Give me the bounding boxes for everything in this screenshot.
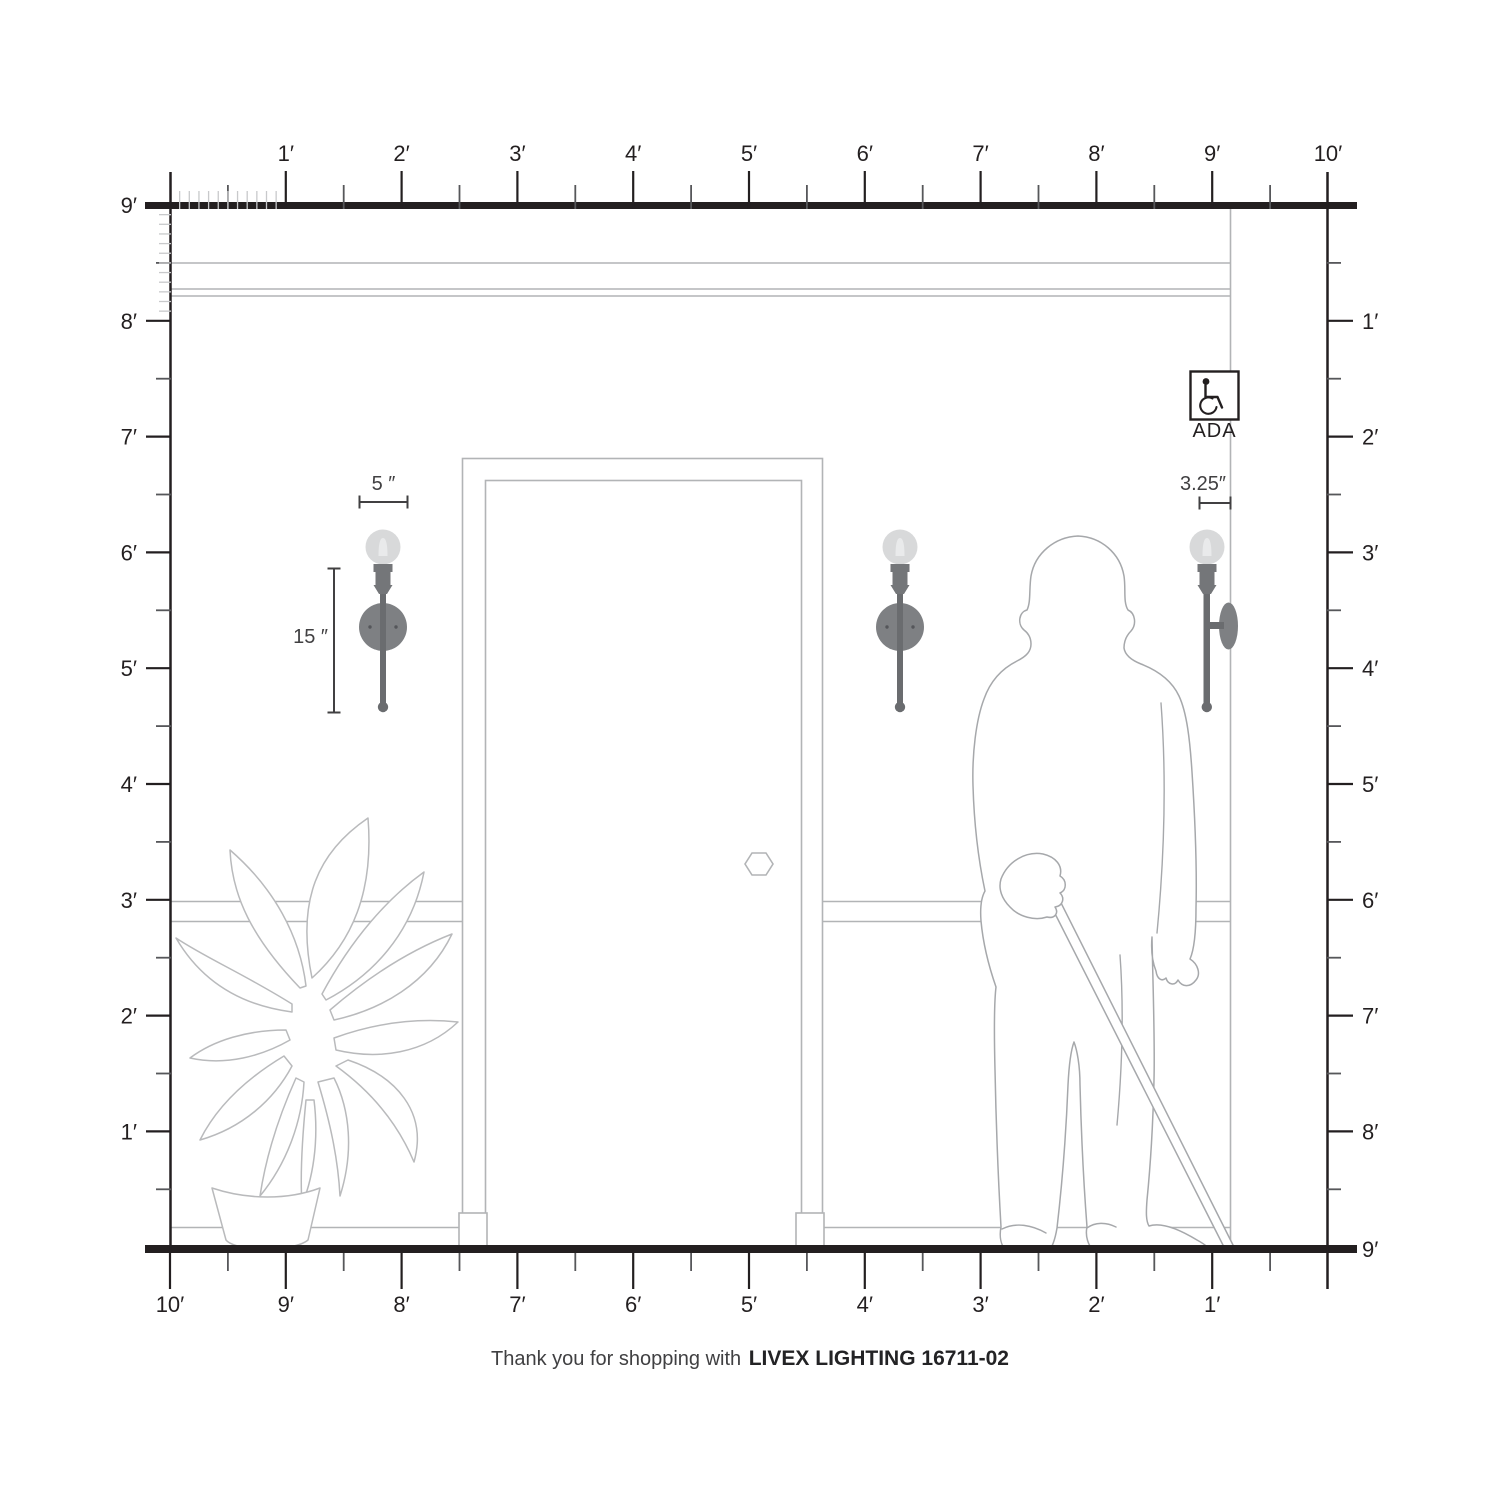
left-ruler-label: 3′ bbox=[121, 888, 137, 913]
footer-text: Thank you for shopping with bbox=[491, 1348, 747, 1370]
footer-note: Thank you for shopping with LIVEX LIGHTI… bbox=[0, 1347, 1500, 1371]
right-ruler-label: 6′ bbox=[1362, 888, 1378, 913]
wall-sconce-front-left bbox=[359, 530, 407, 713]
top-ruler-label: 1′ bbox=[278, 141, 294, 166]
bottom-ruler-label: 2′ bbox=[1088, 1292, 1104, 1317]
left-ruler-label: 6′ bbox=[121, 540, 137, 565]
door-knob bbox=[745, 853, 773, 875]
top-ruler-label: 4′ bbox=[625, 141, 641, 166]
ada-label: ADA bbox=[1192, 420, 1236, 442]
right-ruler-label: 1′ bbox=[1362, 309, 1378, 334]
right-ruler-label: 3′ bbox=[1362, 540, 1378, 565]
right-ruler-label: 5′ bbox=[1362, 772, 1378, 797]
ruler-bottom: 10′9′8′7′6′5′4′3′2′1′ bbox=[156, 1253, 1270, 1317]
dimension-depth: 3.25″ bbox=[1180, 473, 1231, 510]
wheelchair-icon bbox=[1203, 378, 1210, 385]
door-plinth-right bbox=[796, 1213, 824, 1248]
dimension-diagram: ADA 5 ″ 15 ″ 3.25″ 1′2′3′4′5′6′7′8′9′10′… bbox=[0, 0, 1500, 1500]
bottom-ruler-label: 4′ bbox=[857, 1292, 873, 1317]
plant-pot bbox=[212, 1188, 320, 1249]
height-dimension-label: 15 ″ bbox=[293, 626, 328, 648]
depth-dimension-label: 3.25″ bbox=[1180, 473, 1226, 495]
right-ruler-label: 4′ bbox=[1362, 656, 1378, 681]
floor-line bbox=[145, 1245, 1357, 1253]
potted-plant bbox=[176, 818, 458, 1249]
ruler-right: 1′2′3′4′5′6′7′8′9′ bbox=[1327, 263, 1378, 1262]
wall-sconce-front-middle bbox=[876, 530, 924, 713]
scene-drawing: ADA 5 ″ 15 ″ 3.25″ 1′2′3′4′5′6′7′8′9′10′… bbox=[0, 0, 1500, 1500]
top-ruler-label: 3′ bbox=[509, 141, 525, 166]
ceiling-line bbox=[145, 202, 1357, 209]
door bbox=[459, 459, 824, 1249]
bottom-ruler-label: 1′ bbox=[1204, 1292, 1220, 1317]
bottom-ruler-label: 10′ bbox=[156, 1292, 185, 1317]
ada-sign: ADA bbox=[1191, 372, 1239, 443]
right-ruler-label: 7′ bbox=[1362, 1004, 1378, 1029]
top-ruler-label: 2′ bbox=[393, 141, 409, 166]
dimension-height: 15 ″ bbox=[293, 569, 340, 713]
right-ruler-label: 2′ bbox=[1362, 425, 1378, 450]
left-ruler-label: 9′ bbox=[121, 193, 137, 218]
top-ruler-label: 6′ bbox=[857, 141, 873, 166]
door-plinth-left bbox=[459, 1213, 487, 1248]
top-ruler-label: 7′ bbox=[972, 141, 988, 166]
left-ruler-label: 7′ bbox=[121, 425, 137, 450]
bottom-ruler-label: 5′ bbox=[741, 1292, 757, 1317]
ruler-top: 1′2′3′4′5′6′7′8′9′10′ bbox=[180, 141, 1343, 209]
width-dimension-label: 5 ″ bbox=[372, 473, 396, 495]
bottom-ruler-label: 7′ bbox=[509, 1292, 525, 1317]
right-ruler-label: 8′ bbox=[1362, 1119, 1378, 1144]
top-ruler-label: 9′ bbox=[1204, 141, 1220, 166]
footer-brand: LIVEX LIGHTING 16711-02 bbox=[749, 1347, 1009, 1370]
person-silhouette bbox=[973, 536, 1233, 1252]
bottom-ruler-label: 9′ bbox=[278, 1292, 294, 1317]
dimension-width: 5 ″ bbox=[360, 473, 408, 509]
bottom-ruler-label: 8′ bbox=[393, 1292, 409, 1317]
left-ruler-label: 8′ bbox=[121, 309, 137, 334]
ruler-left: 9′8′7′6′5′4′3′2′1′ bbox=[121, 193, 171, 1189]
bottom-ruler-label: 6′ bbox=[625, 1292, 641, 1317]
left-ruler-label: 4′ bbox=[121, 772, 137, 797]
bottom-ruler-label: 3′ bbox=[972, 1292, 988, 1317]
left-ruler-label: 1′ bbox=[121, 1119, 137, 1144]
left-ruler-label: 2′ bbox=[121, 1004, 137, 1029]
crown-molding bbox=[171, 263, 1230, 296]
right-ruler-floor-label: 9′ bbox=[1362, 1237, 1378, 1262]
top-ruler-label: 10′ bbox=[1314, 141, 1343, 166]
top-ruler-label: 5′ bbox=[741, 141, 757, 166]
left-ruler-label: 5′ bbox=[121, 656, 137, 681]
top-ruler-label: 8′ bbox=[1088, 141, 1104, 166]
